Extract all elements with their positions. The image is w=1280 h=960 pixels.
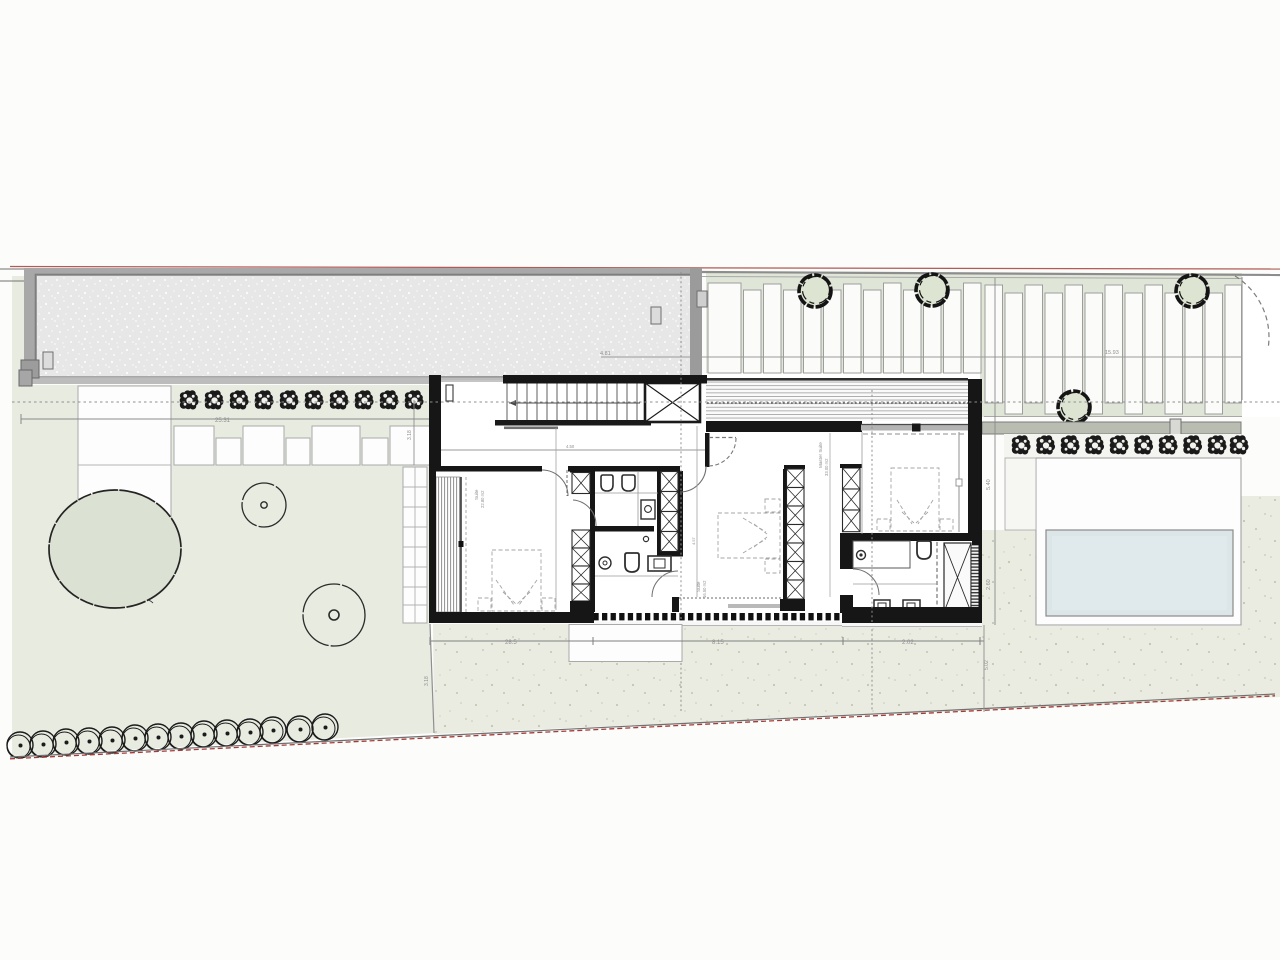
svg-text:4.57: 4.57 [691,536,696,545]
svg-text:2.60: 2.60 [986,579,992,590]
svg-text:3.18: 3.18 [407,430,413,440]
svg-text:4.81: 4.81 [600,351,611,357]
svg-text:Suite: Suite [474,489,479,500]
svg-text:4.50: 4.50 [566,444,575,449]
svg-text:Master Suite: Master Suite [818,442,823,468]
svg-text:28.5: 28.5 [505,640,517,646]
svg-text:22.80 m2: 22.80 m2 [480,490,485,508]
svg-text:5.40: 5.40 [986,479,992,490]
svg-text:33.00 m2: 33.00 m2 [824,458,829,476]
svg-text:25.31: 25.31 [215,418,231,424]
svg-text:2.02: 2.02 [902,640,914,646]
svg-text:5.02: 5.02 [984,660,990,670]
svg-text:Suite: Suite [696,581,701,592]
svg-text:8.15: 8.15 [712,640,724,646]
svg-text:15.93: 15.93 [1105,350,1119,356]
svg-text:16.50 m2: 16.50 m2 [702,580,707,598]
svg-text:3.18: 3.18 [424,676,430,686]
